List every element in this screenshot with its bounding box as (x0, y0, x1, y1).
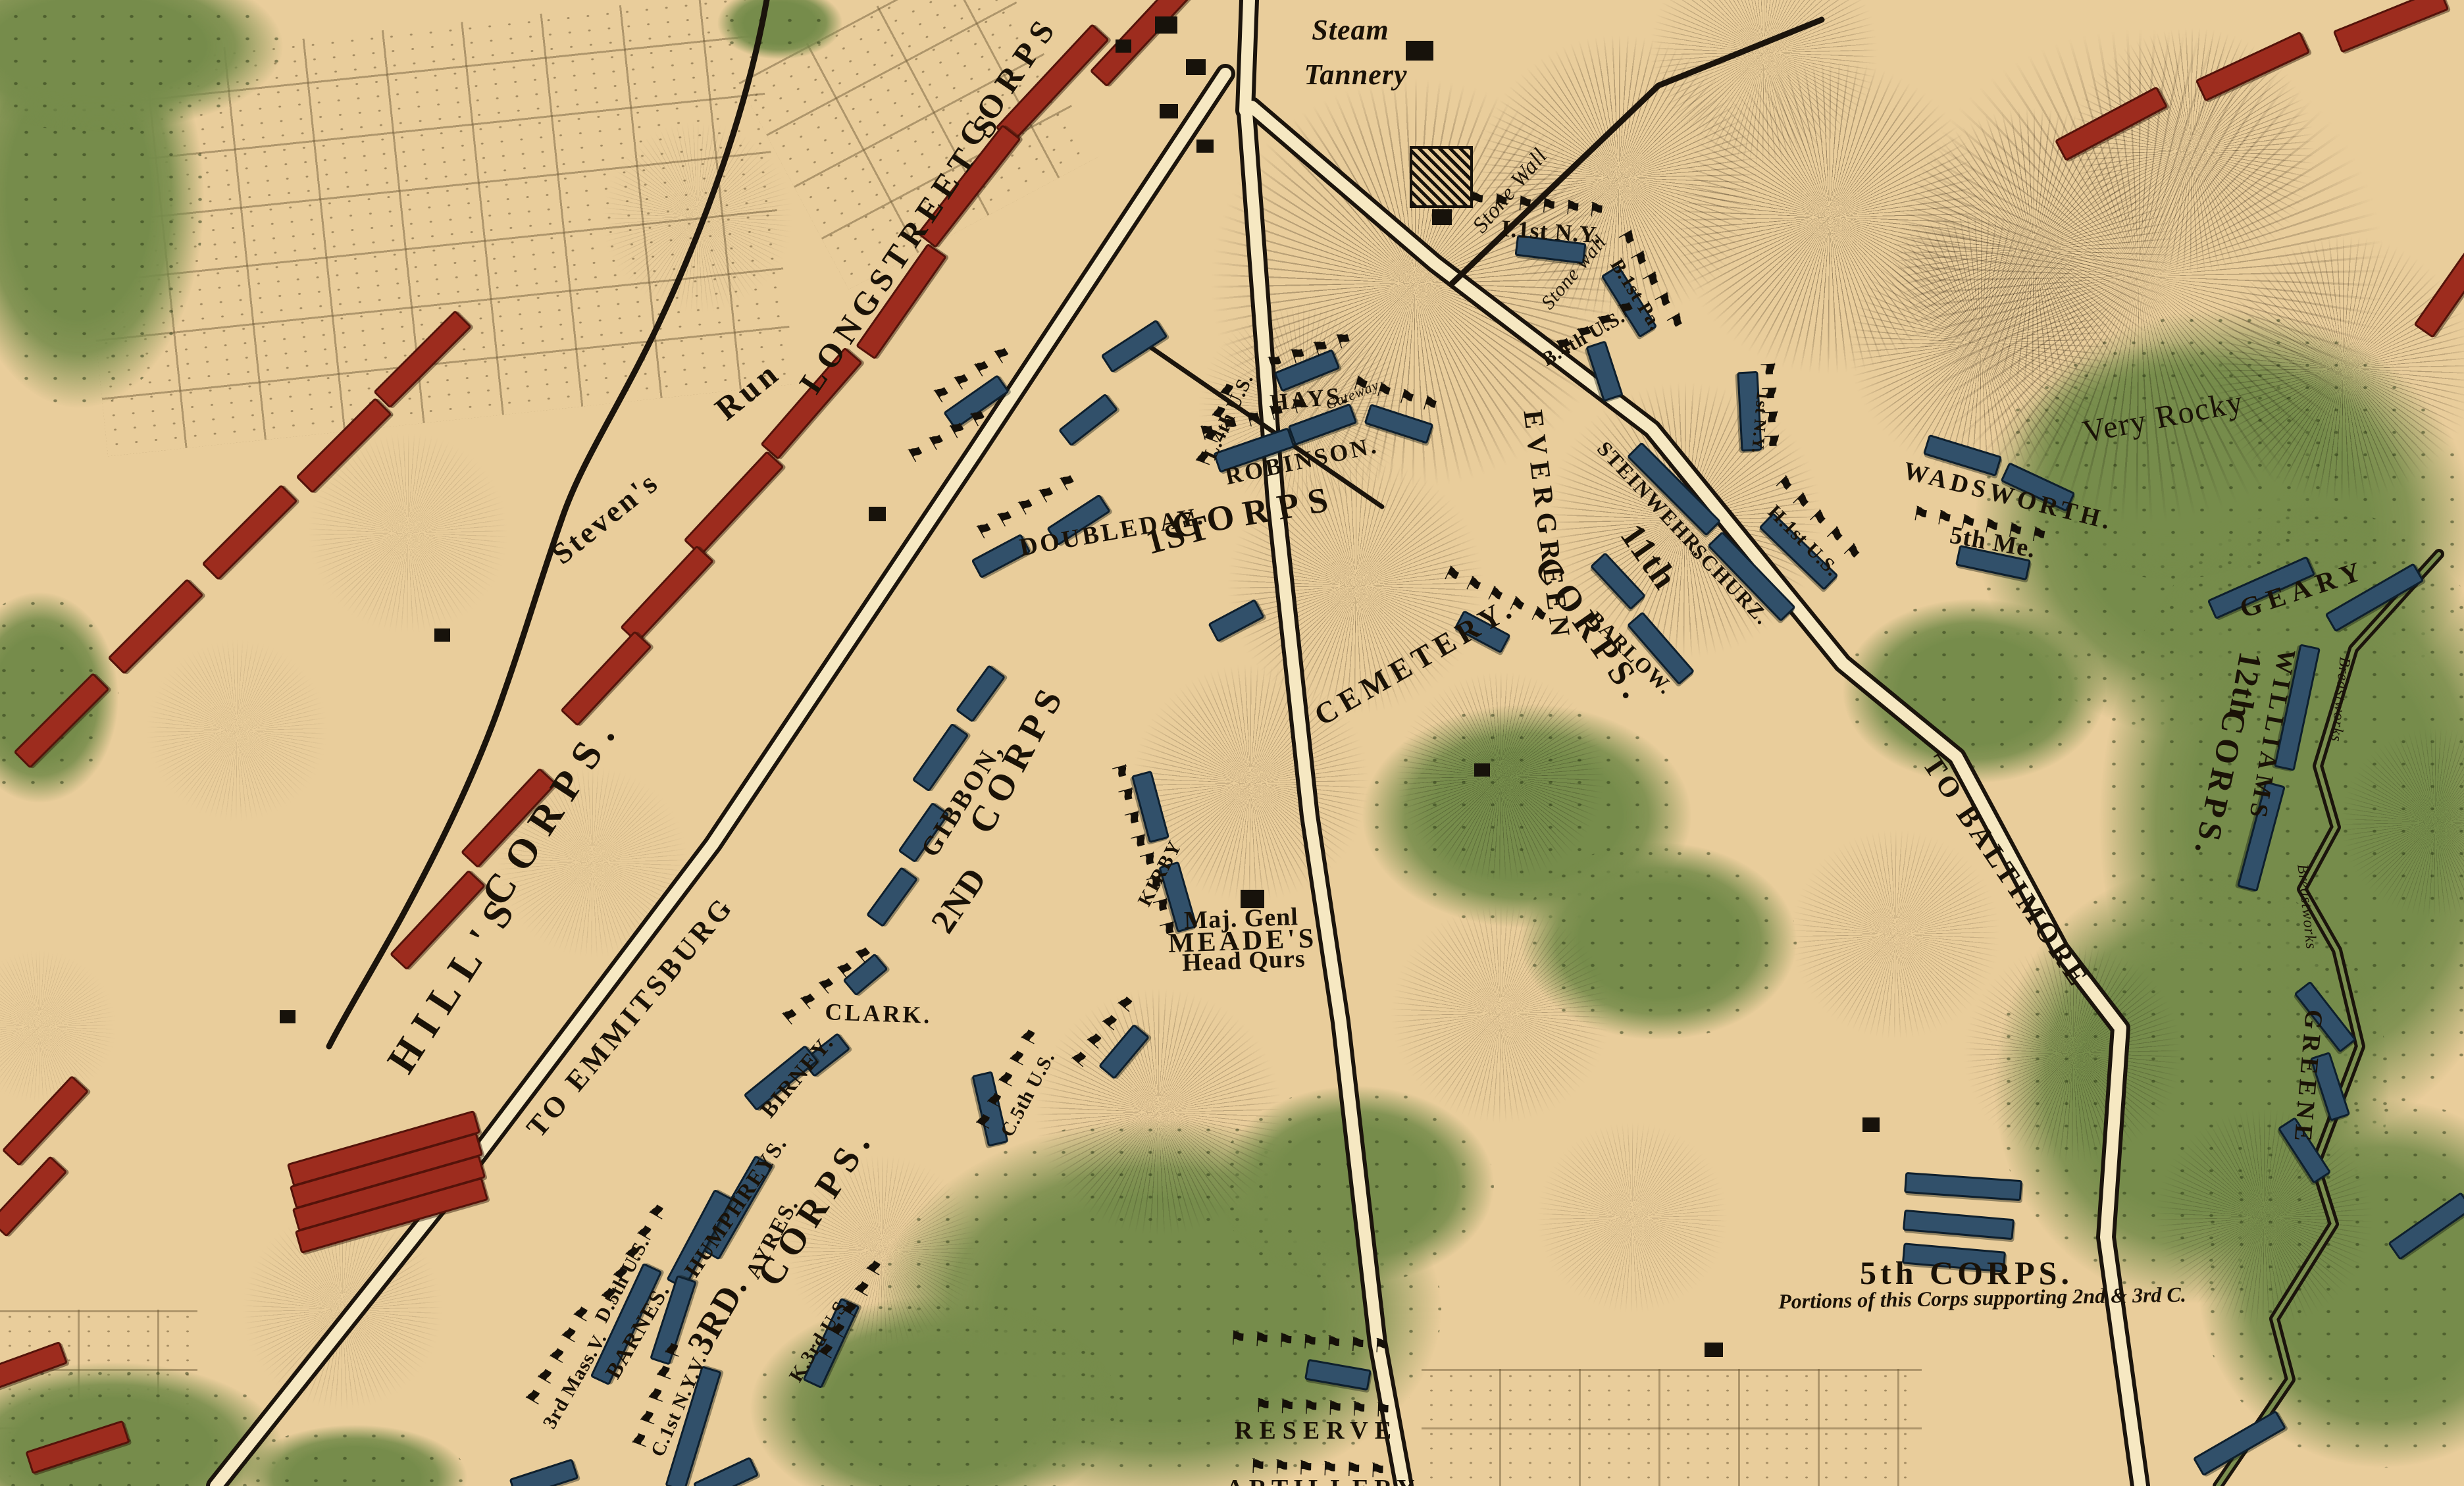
map-label-3rd: 3RD. (681, 1270, 754, 1360)
map-label-l-4th-u-s: L.4th U.S. (1200, 371, 1257, 463)
map-label-to-baltimore: TO BALTIMORE (1918, 750, 2095, 993)
map-label-c-1st-n-y-v: C.1st N.Y.V. (648, 1352, 710, 1460)
map-label-clark: CLARK. (825, 1000, 933, 1027)
gettysburg-battle-map: ⚑ ⚑ ⚑ ⚑ ⚑⚑ ⚑ ⚑ ⚑⚑ ⚑ ⚑ ⚑⚑ ⚑ ⚑ ⚑ ⚑⚑ ⚑ ⚑ ⚑⚑… (0, 0, 2464, 1486)
map-label-corps: CORPS (1169, 480, 1340, 544)
map-label-breastworks: Breastworks (2328, 656, 2352, 743)
map-label-reserve: RESERVE (1235, 1418, 1398, 1443)
map-label-1st-n-y: 1st N.Y. (1749, 391, 1771, 454)
map-label-3rd-mass-v: 3rd Mass.V. (540, 1329, 610, 1432)
map-label-corps: CORPS (952, 9, 1064, 152)
map-label-greene: GREENE (2290, 1008, 2326, 1147)
map-label-wadsworth: WADSWORTH. (1901, 458, 2116, 534)
map-label-very-rocky: Very Rocky (2080, 386, 2247, 448)
map-label-b-4th-u-s: B.4th U.S. (1539, 307, 1628, 370)
map-label-cemetery: CEMETERY. (1310, 592, 1520, 731)
map-label-tannery: Tannery (1304, 61, 1408, 90)
map-label-robinson: ROBINSON. (1223, 433, 1380, 488)
map-label-birney: BIRNEY. (757, 1031, 838, 1122)
map-label-k-3rd-u-s: K.3rd U.S. (786, 1293, 854, 1385)
map-label-geary: GEARY (2236, 556, 2370, 623)
map-label-steven-s: Steven's (547, 466, 665, 569)
map-label-portions-of-this-corps-supporting-2nd-3rd-c: Portions of this Corps supporting 2nd & … (1778, 1284, 2186, 1312)
map-label-steam: Steam (1312, 16, 1389, 45)
map-label-to-emmitsburg: TO EMMITSBURG (522, 891, 740, 1142)
labels-layer: SteamTanneryLONGSTREET'SCORPSSteven'sRun… (0, 0, 2464, 1486)
map-label-head-qurs: Head Qurs (1182, 946, 1306, 976)
map-label-breastworks: Breastworks (2294, 863, 2319, 950)
map-label-2nd: 2ND (925, 861, 993, 939)
map-label-c-5th-u-s: C.5th U.S. (997, 1048, 1058, 1140)
map-label-corps: CORPS. (2189, 707, 2253, 861)
map-label-artillery: ARTILLERY (1225, 1476, 1420, 1486)
map-label-5th-me: 5th Me. (1948, 523, 2038, 562)
map-label-kirby: KIRBY (1135, 837, 1185, 910)
map-label-h-1st-u-s: H.1st U.S. (1764, 501, 1842, 580)
map-label-run: Run (709, 355, 786, 426)
map-label-hill-s: HILL'S (380, 884, 527, 1080)
map-label-schurz: SCHURZ. (1688, 540, 1774, 628)
map-label-corps: CORPS. (475, 706, 629, 913)
